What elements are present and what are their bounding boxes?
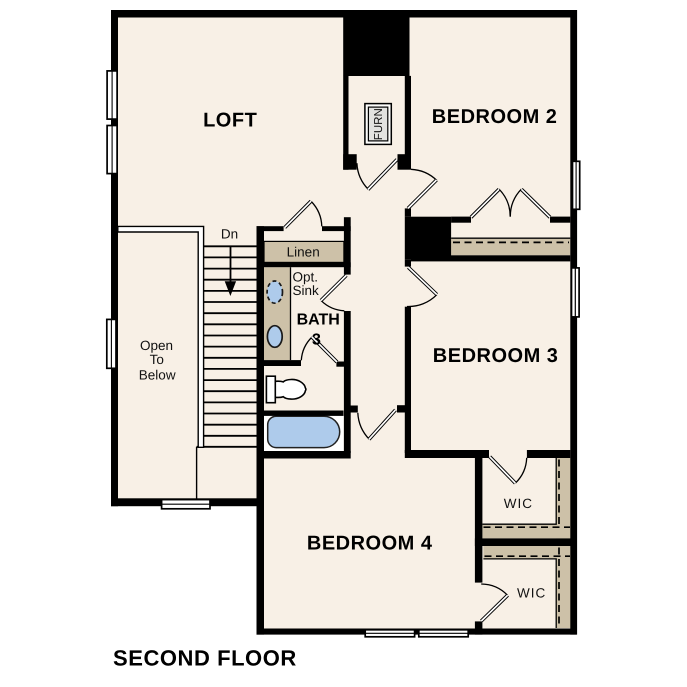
svg-text:BEDROOM 4: BEDROOM 4 [307,532,433,554]
svg-text:Sink: Sink [293,283,320,298]
svg-text:Dn: Dn [221,227,238,242]
svg-text:LOFT: LOFT [203,109,257,131]
svg-text:WIC: WIC [504,496,533,511]
svg-text:BATH: BATH [297,311,340,328]
svg-text:FURN: FURN [373,108,385,140]
svg-text:BEDROOM 3: BEDROOM 3 [433,345,559,367]
svg-text:BEDROOM 2: BEDROOM 2 [432,106,558,128]
svg-text:Linen: Linen [287,245,320,260]
svg-text:Below: Below [139,368,176,383]
svg-text:WIC: WIC [517,585,546,600]
svg-text:To: To [150,352,164,367]
svg-text:SECOND FLOOR: SECOND FLOOR [113,646,297,671]
svg-text:3: 3 [312,331,321,348]
svg-text:Open: Open [140,338,173,353]
svg-text:Opt.: Opt. [293,269,319,284]
